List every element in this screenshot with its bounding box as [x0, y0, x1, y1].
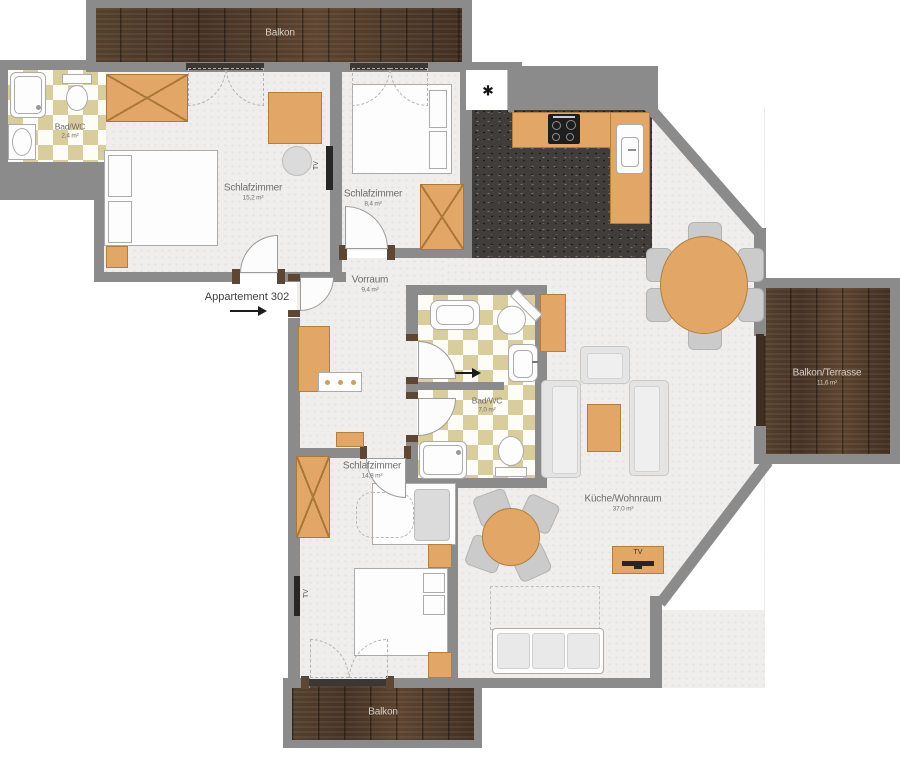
sink-basin	[513, 350, 533, 378]
room-area: 37,0 m²	[584, 505, 661, 512]
sofa-cushion	[634, 386, 660, 472]
door-post	[288, 274, 300, 281]
room-label-bath-small: Bad/WC 2,4 m²	[55, 122, 85, 139]
room-name: Schlafzimmer	[343, 461, 401, 473]
wall	[0, 60, 92, 70]
toilet-bowl	[66, 85, 88, 111]
tv-icon	[294, 576, 300, 616]
room-name: Schlafzimmer	[224, 183, 282, 195]
nightstand	[428, 544, 452, 568]
room-name: Schlafzimmer	[344, 189, 402, 201]
knob	[325, 380, 330, 385]
wall	[406, 288, 418, 340]
armchair-cushion	[587, 353, 623, 379]
toilet-tank	[62, 74, 92, 84]
tv-stand	[634, 566, 642, 569]
room-label-terrace: Balkon/Terrasse 11,6 m²	[793, 368, 862, 387]
shower	[419, 441, 467, 479]
mattress	[414, 489, 450, 541]
dining-table	[660, 236, 748, 334]
room-name: Balkon	[368, 706, 397, 718]
shower	[10, 72, 46, 118]
shower-drain	[36, 105, 41, 110]
door-post	[232, 269, 240, 284]
toilet	[62, 74, 92, 112]
room-name: Küche/Wohnraum	[584, 494, 661, 506]
terrace-door-threshold	[756, 334, 764, 426]
balcony-door-threshold	[308, 679, 388, 686]
door-post	[406, 435, 418, 442]
double-bed	[104, 150, 218, 246]
knob	[351, 380, 356, 385]
room-label-living: Küche/Wohnraum 37,0 m²	[584, 494, 661, 513]
cooktop-vent	[553, 116, 575, 118]
room-area: 14,8 m²	[343, 472, 401, 479]
burner	[552, 121, 561, 130]
door-post	[406, 334, 418, 341]
wardrobe-icon	[296, 456, 330, 538]
wall	[406, 285, 547, 295]
wall	[94, 162, 104, 280]
door-post	[406, 392, 418, 399]
room-area: 15,2 m²	[224, 194, 282, 201]
tv-label: TV	[303, 589, 310, 598]
wall	[754, 426, 766, 456]
room-label-bedroom-3: Schlafzimmer 14,8 m²	[343, 461, 401, 480]
wall	[754, 278, 900, 288]
rug	[490, 586, 600, 630]
wall	[0, 162, 106, 200]
room-name: Balkon/Terrasse	[793, 368, 862, 380]
room-area: 9,4 m²	[352, 286, 388, 293]
wall	[474, 678, 482, 748]
pillow	[429, 90, 447, 128]
toilet-tank	[495, 467, 527, 477]
nightstand	[428, 652, 452, 678]
wall	[94, 272, 240, 282]
wardrobe-icon	[106, 74, 188, 122]
storage-symbol: ✱	[482, 83, 494, 100]
room-area: 7,0 m²	[472, 406, 502, 413]
door-post	[277, 269, 285, 284]
cooktop	[548, 114, 580, 144]
direction-arrow	[454, 372, 474, 374]
sink-basin	[621, 137, 639, 167]
room-name: Balkon	[265, 27, 294, 39]
room-label-balcony-top: Balkon	[265, 27, 294, 39]
wall	[406, 436, 418, 488]
sink	[430, 300, 480, 330]
cabinet	[540, 294, 566, 352]
shelf	[336, 432, 364, 447]
wall	[0, 60, 8, 172]
wall	[412, 382, 504, 390]
room-area: 2,4 m²	[55, 132, 85, 139]
pillow	[108, 155, 132, 197]
sofa-cushion	[532, 633, 565, 669]
wall	[754, 454, 900, 464]
wall	[508, 66, 514, 112]
sink-basin	[12, 128, 32, 156]
coffee-table	[587, 404, 621, 452]
wall	[283, 740, 482, 748]
knob	[338, 380, 343, 385]
armchair	[580, 346, 630, 384]
wall	[388, 678, 478, 688]
tv-icon	[326, 146, 333, 190]
room-label-bath-main: Bad/WC 7,0 m²	[472, 396, 502, 413]
pillow	[423, 595, 445, 615]
pillow	[429, 131, 447, 169]
faucet	[532, 361, 538, 363]
room-name: Bad/WC	[472, 396, 502, 406]
wall	[650, 596, 662, 688]
room-name: Vorraum	[352, 275, 388, 287]
kitchen-sink	[616, 124, 644, 174]
hall-bench	[318, 372, 362, 392]
shower-drain	[456, 450, 461, 455]
round-table	[482, 508, 540, 566]
sofa-cushion	[497, 633, 530, 669]
pillow	[108, 201, 132, 243]
wall	[512, 66, 658, 110]
sofa	[541, 380, 581, 478]
sink	[508, 344, 538, 382]
door-post	[288, 310, 300, 317]
chair	[282, 146, 312, 176]
tv-label: TV	[613, 549, 663, 556]
entrance-arrow	[230, 310, 260, 312]
floor-plan: TV ✱	[0, 0, 900, 762]
sofa	[492, 628, 604, 674]
sink	[8, 124, 36, 160]
wall	[86, 0, 472, 8]
room-label-bedroom-2: Schlafzimmer 8,4 m²	[344, 189, 402, 208]
sofa	[629, 380, 669, 476]
entrance-arrow-head	[258, 306, 267, 316]
room-label-bedroom-1: Schlafzimmer 15,2 m²	[224, 183, 282, 202]
sofa-cushion	[567, 633, 600, 669]
tv-label: TV	[313, 161, 320, 170]
direction-arrow-head	[472, 368, 481, 378]
room-name: Bad/WC	[55, 122, 85, 132]
apartment-label: Appartement 302	[205, 291, 289, 303]
wall	[890, 278, 900, 464]
foldout-bed-outline	[356, 492, 414, 538]
burner	[566, 120, 576, 130]
wall	[86, 62, 522, 72]
room-label-hall: Vorraum 9,4 m²	[352, 275, 388, 294]
burner	[566, 133, 574, 141]
pillow	[423, 573, 445, 593]
double-bed	[354, 568, 448, 656]
room-area: 11,6 m²	[793, 379, 862, 386]
room-label-balcony-bottom: Balkon	[368, 706, 397, 718]
desk	[268, 92, 322, 144]
tv-sideboard: TV	[612, 546, 664, 574]
sink-basin	[436, 305, 474, 325]
nightstand	[106, 246, 128, 268]
faucet	[628, 149, 636, 151]
door-post	[406, 377, 418, 384]
toilet-bowl	[498, 436, 524, 466]
wardrobe-icon	[420, 184, 464, 250]
door-post	[301, 676, 309, 689]
door-post	[387, 245, 395, 260]
sofa-cushion	[552, 386, 578, 474]
wall	[283, 678, 292, 748]
toilet	[494, 436, 528, 478]
room-area: 8,4 m²	[344, 200, 402, 207]
burner	[552, 133, 560, 141]
